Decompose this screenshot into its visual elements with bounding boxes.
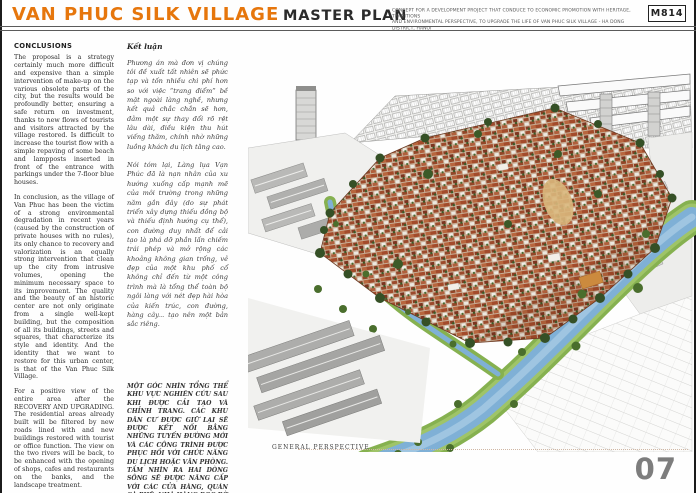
- page-edge-line-left: [0, 0, 2, 493]
- tower-building: [296, 86, 316, 140]
- ket-luan-paragraph: Nói tóm lại, Làng lụa Vạn Phúc đã là nạn…: [127, 161, 228, 329]
- header-divider: [0, 26, 696, 31]
- conclusions-paragraph: The proposal is a strategy certainly muc…: [14, 54, 114, 187]
- page-title: VAN PHUC SILK VILLAGE: [12, 4, 279, 25]
- village-core: [320, 108, 672, 343]
- conclusions-paragraph: In conclusion, as the village of Van Phu…: [14, 194, 114, 381]
- general-perspective-rendering: [248, 34, 696, 452]
- warehouses-foreground: [248, 298, 430, 444]
- ket-luan-column: Kết luận Phương án mà đơn vị chúng tôi đ…: [127, 42, 228, 482]
- poster-page: VAN PHUC SILK VILLAGE MASTER PLAN CONCEP…: [0, 0, 696, 493]
- page-number: 07: [635, 452, 677, 486]
- ket-luan-heading: Kết luận: [127, 42, 228, 53]
- perspective-caption: MỘT GÓC NHÌN TỔNG THỂ KHU VỰC NGHIÊN CỨU…: [127, 383, 228, 493]
- project-code-badge: M814: [648, 5, 686, 22]
- page-subtitle: MASTER PLAN: [283, 8, 407, 24]
- footer-dotted-divider: [298, 449, 688, 450]
- header-description-line1: CONCEPT FOR A DEVELOPMENT PROJECT THAT C…: [392, 8, 642, 20]
- aerial-village-illustration: [248, 34, 696, 452]
- conclusions-paragraph: For a positive view of the entire area a…: [14, 388, 114, 489]
- conclusions-column: CONCLUSIONS The proposal is a strategy c…: [14, 42, 114, 493]
- conclusions-heading: CONCLUSIONS: [14, 42, 114, 50]
- ket-luan-paragraph: Phương án mà đơn vị chúng tôi đề xuất tấ…: [127, 59, 228, 153]
